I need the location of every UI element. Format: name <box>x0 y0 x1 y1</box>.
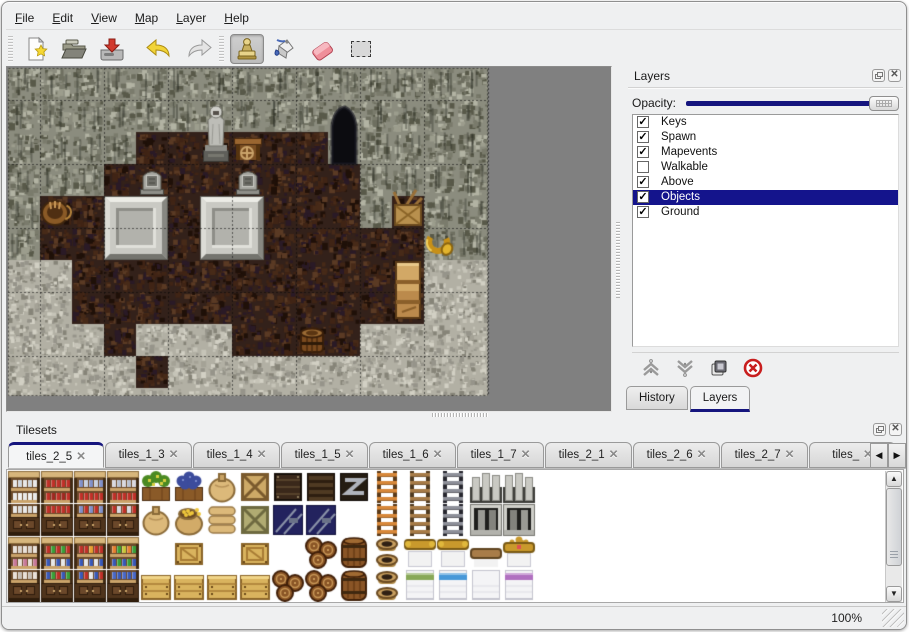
splitter-grip <box>616 222 620 298</box>
close-icon: ✕ <box>890 423 901 434</box>
resize-grip[interactable] <box>882 609 904 627</box>
panel-tab-layers[interactable]: Layers <box>690 386 751 412</box>
opacity-slider-track <box>686 101 897 106</box>
menu-item-map[interactable]: Map <box>126 8 167 28</box>
panel-tab-history[interactable]: History <box>626 386 688 410</box>
fill-tool-button[interactable] <box>268 34 302 64</box>
tileset-tab-tiles_1_6[interactable]: tiles_1_6✕ <box>369 442 456 468</box>
layer-visibility-checkbox[interactable]: ✓ <box>637 191 649 203</box>
layer-visibility-checkbox[interactable]: ✓ <box>637 176 649 188</box>
vertical-splitter[interactable] <box>612 66 624 412</box>
scroll-tabs-right-button[interactable]: ▶ <box>888 443 906 468</box>
scroll-up-button[interactable]: ▲ <box>886 471 902 487</box>
raise-layer-button[interactable] <box>640 357 662 379</box>
close-tab-icon[interactable]: ✕ <box>785 449 795 461</box>
map-canvas[interactable] <box>7 67 611 411</box>
layer-row[interactable]: ✓Ground <box>633 205 898 220</box>
app-window: FileEditViewMapLayerHelp <box>1 1 907 630</box>
toolbar-grip[interactable] <box>219 36 224 62</box>
tileset-tab-tiles_1_4[interactable]: tiles_1_4✕ <box>193 442 280 468</box>
opacity-label: Opacity: <box>632 96 676 110</box>
open-file-button[interactable] <box>57 34 91 64</box>
scroll-tabs-left-button[interactable]: ◀ <box>870 443 888 468</box>
layer-row[interactable]: ✓Above <box>633 175 898 190</box>
tilesets-panel-title: Tilesets <box>16 423 57 437</box>
new-file-button[interactable] <box>19 34 53 64</box>
layer-row[interactable]: ✓Spawn <box>633 130 898 145</box>
opacity-slider[interactable] <box>684 94 899 112</box>
layer-row[interactable]: ✓Keys <box>633 115 898 130</box>
tileset-tab-tiles_1_5[interactable]: tiles_1_5✕ <box>281 442 368 468</box>
select-tool-button[interactable] <box>344 34 378 64</box>
close-tab-icon[interactable]: ✕ <box>433 449 443 461</box>
close-tab-icon[interactable]: ✕ <box>76 451 86 463</box>
stamp-tool-button[interactable] <box>230 34 264 64</box>
layer-row[interactable]: ✓Objects <box>633 190 898 205</box>
raise-layer-icon <box>641 358 661 378</box>
layer-list: ✓Keys✓Spawn✓MapeventsWalkable✓Above✓Obje… <box>632 114 899 347</box>
layer-name: Ground <box>661 206 699 218</box>
menu-item-help[interactable]: Help <box>215 8 258 28</box>
menu-item-layer[interactable]: Layer <box>167 8 215 28</box>
duplicate-layer-button[interactable] <box>708 357 730 379</box>
close-tab-icon[interactable]: ✕ <box>345 449 355 461</box>
lower-layer-button[interactable] <box>674 357 696 379</box>
close-tab-icon[interactable]: ✕ <box>169 449 179 461</box>
undo-icon <box>146 36 174 62</box>
layer-name: Keys <box>661 116 687 128</box>
opacity-slider-handle[interactable] <box>869 96 899 111</box>
eraser-tool-button[interactable] <box>306 34 340 64</box>
layer-row[interactable]: Walkable <box>633 160 898 175</box>
splitter-grip <box>432 413 488 417</box>
layer-name: Spawn <box>661 131 696 143</box>
tileset-canvas[interactable] <box>7 470 885 602</box>
layer-visibility-checkbox[interactable]: ✓ <box>637 116 649 128</box>
scrollbar-thumb[interactable] <box>886 488 902 566</box>
eraser-icon <box>309 36 337 62</box>
tileset-tab-tiles_2_6[interactable]: tiles_2_6✕ <box>633 442 720 468</box>
redo-button[interactable] <box>181 34 215 64</box>
delete-layer-icon <box>743 358 763 378</box>
fill-bucket-icon <box>271 36 299 62</box>
save-button[interactable] <box>95 34 129 64</box>
layers-panel-header: Layers ✕ <box>624 66 907 86</box>
layer-visibility-checkbox[interactable]: ✓ <box>637 146 649 158</box>
stamp-tool-icon <box>234 36 260 62</box>
close-tab-icon[interactable]: ✕ <box>521 449 531 461</box>
menu-bar: FileEditViewMapLayerHelp <box>6 8 902 30</box>
selection-rect-icon <box>351 41 371 57</box>
duplicate-layer-icon <box>709 358 729 378</box>
undo-button[interactable] <box>143 34 177 64</box>
tileset-tab-tiles_2_1[interactable]: tiles_2_1✕ <box>545 442 632 468</box>
layers-panel-title: Layers <box>634 69 670 83</box>
redo-icon <box>184 36 212 62</box>
close-tab-icon[interactable]: ✕ <box>257 449 267 461</box>
tileset-scrollbar[interactable]: ▲ ▼ <box>885 471 902 602</box>
toolbar <box>6 32 902 66</box>
toolbar-grip[interactable] <box>8 36 13 62</box>
layer-actions <box>632 352 899 382</box>
scroll-down-button[interactable]: ▼ <box>886 586 902 602</box>
tileset-tab-tiles_1_3[interactable]: tiles_1_3✕ <box>105 442 192 468</box>
layer-visibility-checkbox[interactable]: ✓ <box>637 131 649 143</box>
zoom-level: 100% <box>831 611 862 625</box>
float-panel-button[interactable] <box>872 69 885 82</box>
open-folder-icon <box>60 36 88 62</box>
map-viewport <box>6 66 612 412</box>
layer-name: Walkable <box>661 161 708 173</box>
save-icon <box>98 36 126 62</box>
layer-visibility-checkbox[interactable] <box>637 161 649 173</box>
lower-layer-icon <box>675 358 695 378</box>
tileset-tab-bar: tiles_2_5✕tiles_1_3✕tiles_1_4✕tiles_1_5✕… <box>8 442 907 469</box>
close-tab-icon[interactable]: ✕ <box>697 449 707 461</box>
layer-name: Objects <box>661 191 700 203</box>
tileset-view: ▲ ▼ <box>6 469 904 603</box>
layer-row[interactable]: ✓Mapevents <box>633 145 898 160</box>
tileset-tab-tiles_1_7[interactable]: tiles_1_7✕ <box>457 442 544 468</box>
close-icon: ✕ <box>889 69 900 80</box>
close-panel-button[interactable]: ✕ <box>888 69 901 82</box>
tilesets-panel: Tilesets ✕ tiles_2_5✕tiles_1_3✕tiles_1_4… <box>6 420 907 610</box>
layer-visibility-checkbox[interactable]: ✓ <box>637 206 649 218</box>
menu-item-view[interactable]: View <box>82 8 126 28</box>
menu-item-edit[interactable]: Edit <box>43 8 82 28</box>
delete-layer-button[interactable] <box>742 357 764 379</box>
tilesets-panel-header: Tilesets ✕ <box>6 420 907 440</box>
tileset-tab-tiles_2_7[interactable]: tiles_2_7✕ <box>721 442 808 468</box>
close-tab-icon[interactable]: ✕ <box>609 449 619 461</box>
float-panel-button[interactable] <box>873 423 886 436</box>
layers-panel: Layers ✕ Opacity: ✓Keys✓Spawn✓MapeventsW… <box>624 66 907 412</box>
menu-item-file[interactable]: File <box>6 8 43 28</box>
layer-name: Mapevents <box>661 146 717 158</box>
new-file-icon <box>23 36 49 62</box>
tileset-tab-tiles_2_5[interactable]: tiles_2_5✕ <box>8 442 104 468</box>
layer-name: Above <box>661 176 694 188</box>
close-panel-button[interactable]: ✕ <box>889 423 902 436</box>
layers-history-tabs: HistoryLayers <box>626 386 752 412</box>
status-bar: 100% <box>2 606 906 629</box>
